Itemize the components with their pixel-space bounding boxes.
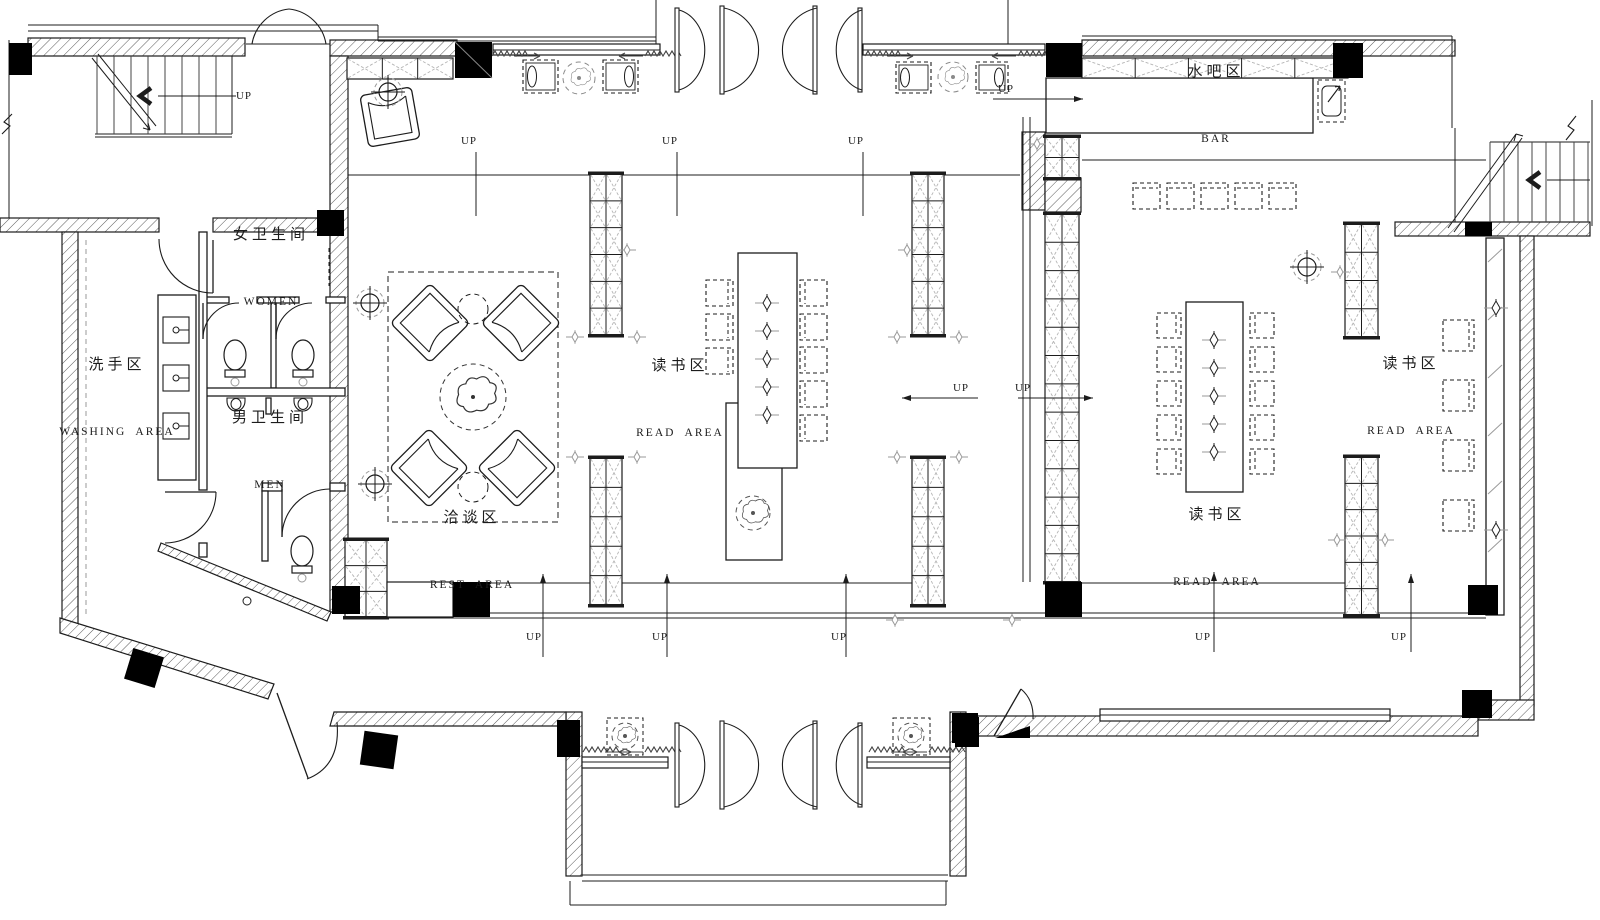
up-marker: UP [848,135,864,147]
column [360,731,398,769]
floor-plan: 水吧区 BAR 女卫生间 WOMEN 洗手区 WASHING AREA 男卫生间… [0,0,1600,920]
cabinet-row [1082,58,1348,78]
fixture [199,543,207,557]
column [317,210,344,236]
column [1333,43,1363,78]
wall [1082,40,1455,56]
column [1468,585,1498,615]
fixture [199,232,207,490]
up-marker: UP [652,631,668,643]
bookshelf [1043,135,1081,181]
up-marker: UP [1015,382,1031,394]
door-leaf [813,721,817,809]
fixture [262,491,268,561]
column [332,586,360,614]
wall [0,218,159,232]
wall [1395,222,1590,236]
up-marker: UP [831,631,847,643]
column [557,720,580,757]
up-marker: UP [236,90,252,102]
fixture [330,483,345,491]
sink [163,317,189,343]
bookshelf [588,456,624,608]
column [1046,43,1082,77]
door-leaf [675,8,679,92]
fixture [257,297,299,303]
fixture [1486,238,1504,615]
up-marker: UP [998,83,1014,95]
door-leaf [858,8,862,92]
column [1462,690,1492,718]
wall [330,712,566,726]
bookshelf [910,456,946,608]
wall [330,56,348,612]
sink [163,365,189,391]
column [1465,222,1492,236]
sink [163,413,189,439]
column [453,582,490,617]
bookshelf [1343,222,1380,340]
bookshelf [1343,455,1380,618]
wall [1520,236,1534,706]
column [9,43,32,75]
cabinet-row [347,58,453,79]
up-marker: UP [526,631,542,643]
wall [1045,178,1081,212]
column [1045,582,1082,617]
fixture [203,388,345,396]
door-leaf [720,721,724,809]
up-marker: UP [1195,631,1211,643]
bookshelf [588,172,624,338]
up-marker: UP [953,382,969,394]
fixture [271,303,276,388]
wall [330,40,457,56]
fixture [262,483,282,491]
door-leaf [858,723,862,807]
fixture [1046,78,1313,133]
up-marker: UP [461,135,477,147]
bookshelf [910,172,946,338]
column [952,713,978,743]
wall [28,38,245,56]
fixture [326,297,345,303]
door-leaf [675,723,679,807]
up-marker: UP [662,135,678,147]
door-leaf [813,6,817,94]
floor-plan-drawing [0,0,1600,920]
wall [62,232,78,624]
armchair [360,87,420,147]
fixture [266,398,271,414]
up-marker: UP [1391,631,1407,643]
door-leaf [720,6,724,94]
